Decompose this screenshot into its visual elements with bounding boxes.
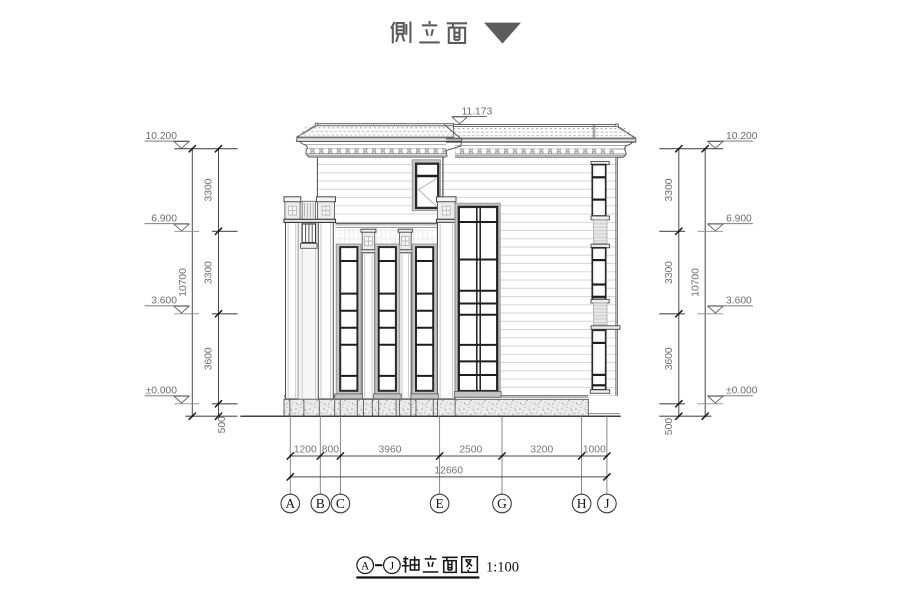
svg-text:10700: 10700: [691, 268, 702, 297]
svg-text:800: 800: [322, 445, 339, 456]
svg-text:11.173: 11.173: [462, 106, 493, 117]
svg-text:B: B: [316, 496, 325, 511]
svg-text:H: H: [577, 496, 587, 511]
svg-text:G: G: [497, 496, 507, 511]
svg-text:C: C: [336, 496, 345, 511]
svg-text:10.200: 10.200: [146, 131, 178, 142]
svg-text:E: E: [435, 496, 443, 511]
svg-text:6.900: 6.900: [151, 214, 177, 225]
svg-text:±0.000: ±0.000: [726, 386, 758, 397]
svg-text:10700: 10700: [178, 268, 189, 297]
svg-text:3300: 3300: [664, 261, 675, 284]
svg-text:A: A: [285, 496, 295, 511]
svg-text:A: A: [361, 560, 370, 572]
svg-text:2500: 2500: [459, 445, 482, 456]
svg-text:3300: 3300: [664, 178, 675, 201]
svg-text:3.600: 3.600: [726, 296, 752, 307]
svg-text:3600: 3600: [664, 347, 675, 370]
svg-text:J: J: [604, 496, 609, 511]
svg-text:3200: 3200: [530, 445, 553, 456]
svg-text:500: 500: [664, 418, 675, 435]
svg-text:3.600: 3.600: [151, 296, 177, 307]
svg-text:±0.000: ±0.000: [146, 386, 178, 397]
svg-text:12660: 12660: [434, 465, 463, 476]
svg-text:1:100: 1:100: [486, 559, 519, 575]
svg-text:J: J: [390, 560, 395, 572]
svg-text:3300: 3300: [204, 178, 215, 201]
svg-text:3960: 3960: [379, 445, 402, 456]
svg-text:3600: 3600: [204, 347, 215, 370]
svg-text:10.200: 10.200: [726, 131, 758, 142]
svg-text:1000: 1000: [583, 445, 606, 456]
svg-text:1200: 1200: [294, 445, 317, 456]
svg-text:3300: 3300: [204, 261, 215, 284]
svg-text:6.900: 6.900: [726, 214, 752, 225]
svg-text:500: 500: [217, 416, 228, 433]
